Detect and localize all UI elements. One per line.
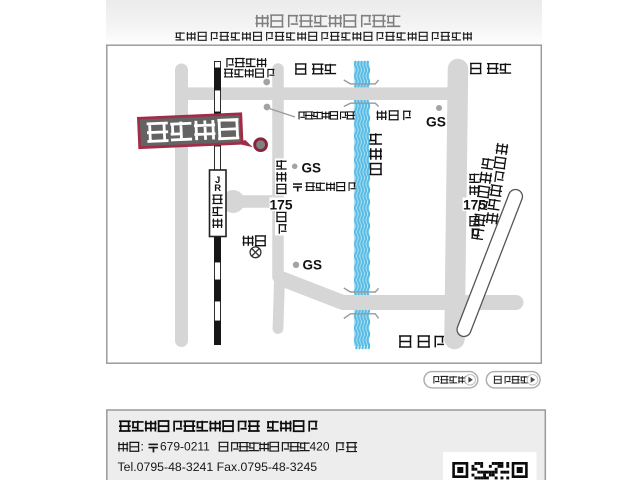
svg-text:679-0211: 679-0211 [160, 440, 210, 454]
svg-text:GS: GS [302, 161, 322, 176]
svg-text:GS: GS [303, 258, 323, 273]
svg-text:R: R [214, 183, 221, 194]
svg-text::: : [141, 440, 144, 454]
svg-text:GS: GS [426, 115, 446, 130]
svg-text:420: 420 [310, 440, 330, 454]
svg-text:175: 175 [269, 198, 292, 213]
svg-text:Tel.0795-48-3241 Fax.0795-48-: Tel.0795-48-3241 Fax.0795-48-3245 [118, 460, 318, 474]
svg-text:175: 175 [463, 198, 486, 213]
